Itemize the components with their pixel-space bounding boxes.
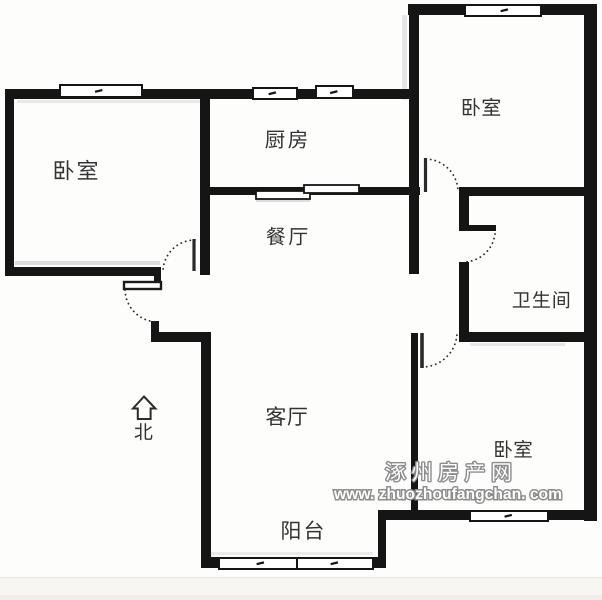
svg-text:www. zhuozhoufangchan. com: www. zhuozhoufangchan. com	[333, 486, 562, 503]
